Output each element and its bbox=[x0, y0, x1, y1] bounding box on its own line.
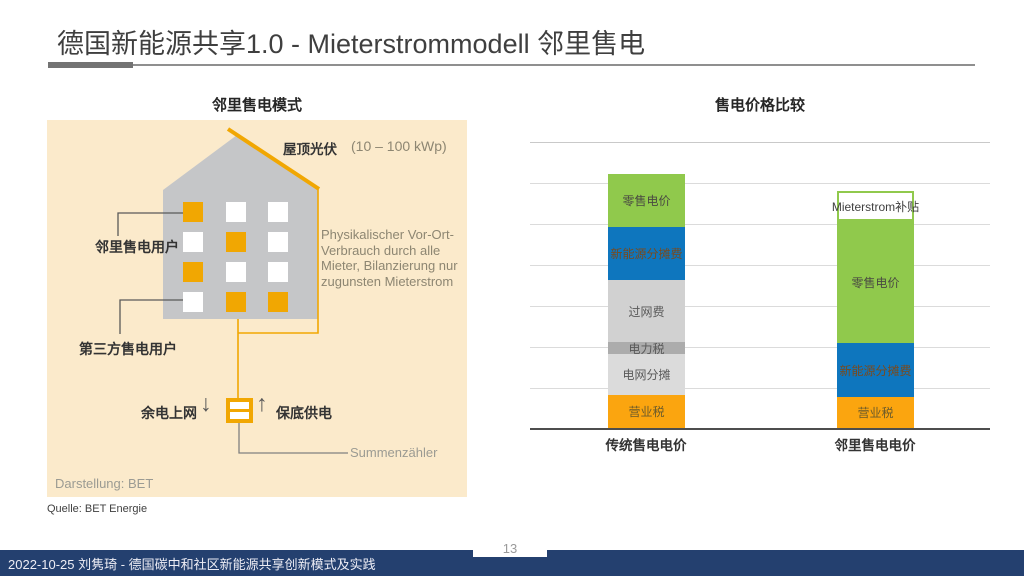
pv-capacity-label: (10 – 100 kWp) bbox=[351, 138, 447, 154]
diagram-panel: 屋顶光伏 (10 – 100 kWp) Physikalischer Vor-O… bbox=[47, 120, 467, 497]
bar-segment-Mieterstrom补贴: Mieterstrom补贴 bbox=[837, 191, 914, 221]
meter-label: Summenzähler bbox=[350, 445, 437, 460]
bar-segment-营业税: 营业税 bbox=[608, 395, 685, 428]
bar-segment-电网分摊: 电网分摊 bbox=[608, 354, 685, 395]
gridline bbox=[530, 224, 990, 225]
backup-supply-label: 保底供电 bbox=[276, 403, 332, 423]
diagram-credit: Darstellung: BET bbox=[55, 476, 153, 491]
house-window-orange bbox=[183, 262, 203, 282]
gridline bbox=[530, 388, 990, 389]
rooftop-pv-label: 屋顶光伏 bbox=[283, 138, 337, 158]
gridline bbox=[530, 265, 990, 266]
footer-text: 2022-10-25 刘隽琦 - 德国碳中和社区新能源共享创新模式及实践 bbox=[8, 554, 376, 573]
house-window-white bbox=[268, 262, 288, 282]
neighbor-leader-line bbox=[118, 213, 193, 236]
gridline bbox=[530, 142, 990, 143]
house-window-orange bbox=[226, 292, 246, 312]
bar-neighborhood: 营业税新能源分摊费零售电价Mieterstrom补贴 bbox=[837, 191, 914, 428]
gridline bbox=[530, 347, 990, 348]
bar-segment-新能源分摊费: 新能源分摊费 bbox=[837, 343, 914, 397]
house-window-orange bbox=[183, 202, 203, 222]
bar-segment-新能源分摊费: 新能源分摊费 bbox=[608, 227, 685, 280]
source-note: Quelle: BET Energie bbox=[47, 503, 147, 515]
gridline bbox=[530, 183, 990, 184]
bar-segment-零售电价: 零售电价 bbox=[837, 221, 914, 343]
x-axis-line bbox=[530, 428, 990, 430]
house-window-white bbox=[268, 232, 288, 252]
house-window-white bbox=[183, 292, 203, 312]
arrow-down-icon: ↓ bbox=[200, 392, 212, 415]
third-party-user-label: 第三方售电用户 bbox=[79, 339, 177, 359]
title-underline-accent bbox=[48, 62, 133, 68]
price-comparison-chart bbox=[530, 142, 990, 430]
house-window-white bbox=[226, 202, 246, 222]
house-window-white bbox=[226, 262, 246, 282]
slide: 德国新能源共享1.0 - Mieterstrommodell 邻里售电 邻里售电… bbox=[0, 0, 1024, 576]
house-windows bbox=[183, 202, 289, 314]
german-note-line: Physikalischer Vor-Ort- bbox=[321, 227, 458, 243]
bar-segment-过网费: 过网费 bbox=[608, 280, 685, 342]
german-note-line: Verbrauch durch alle bbox=[321, 243, 458, 259]
page-title: 德国新能源共享1.0 - Mieterstrommodell 邻里售电 bbox=[57, 22, 645, 61]
house-window-white bbox=[268, 202, 288, 222]
arrow-up-icon: ↑ bbox=[256, 392, 268, 415]
house-window-white bbox=[183, 232, 203, 252]
meter-icon bbox=[226, 398, 253, 423]
bar-segment-零售电价: 零售电价 bbox=[608, 174, 685, 227]
bar-segment-电力税: 电力税 bbox=[608, 342, 685, 354]
bar-segment-营业税: 营业税 bbox=[837, 397, 914, 428]
gridline bbox=[530, 306, 990, 307]
neighbor-user-label: 邻里售电用户 bbox=[95, 237, 179, 257]
title-underline bbox=[48, 64, 975, 66]
german-note-line: Mieter, Bilanzierung nur bbox=[321, 258, 458, 274]
category-label-neighborhood: 邻里售电电价 bbox=[820, 434, 930, 454]
bar-traditional: 营业税电网分摊电力税过网费新能源分摊费零售电价 bbox=[608, 174, 685, 428]
house-window-orange bbox=[268, 292, 288, 312]
german-note-line: zugunsten Mieterstrom bbox=[321, 274, 458, 290]
diagram-title: 邻里售电模式 bbox=[47, 94, 467, 115]
category-label-traditional: 传统售电电价 bbox=[591, 434, 701, 454]
chart-title: 售电价格比较 bbox=[530, 94, 990, 115]
house-window-orange bbox=[226, 232, 246, 252]
german-note: Physikalischer Vor-Ort- Verbrauch durch … bbox=[321, 227, 458, 289]
feed-in-label: 余电上网 bbox=[141, 403, 197, 423]
meter-leader-line bbox=[239, 422, 348, 453]
page-number: 13 bbox=[473, 540, 547, 557]
